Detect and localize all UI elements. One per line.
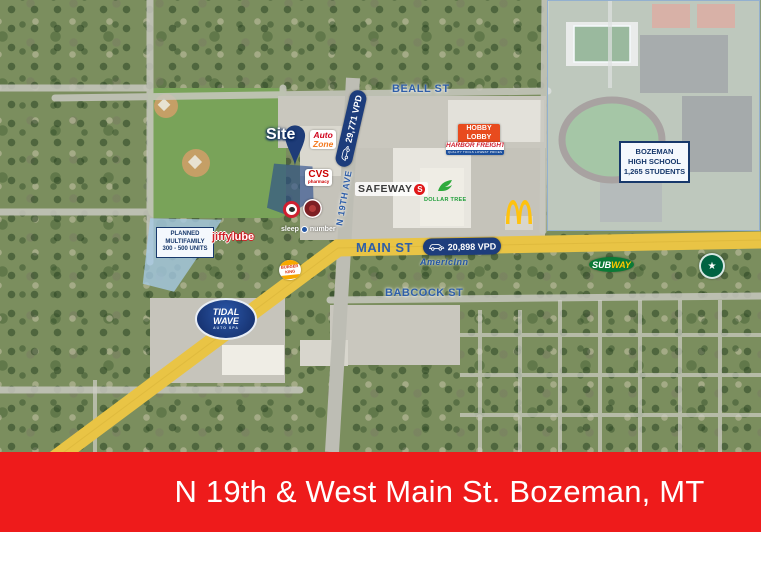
multifamily-line2: MULTIFAMILY [157,239,213,247]
harbor-freight-name: HARBOR FREIGHT [446,142,504,150]
traffic-badge-main-st: 20,898 VPD [423,237,501,255]
cvs-bottom: pharmacy [308,180,329,185]
harbor-freight-tagline: QUALITY TOOLS LOWEST PRICES [446,150,504,155]
dollar-tree-logo: DOLLAR TREE [424,179,466,203]
wave-line: WAVE [213,317,239,326]
sleep-number-logo: sleep number [281,226,336,233]
dollar-tree-name: DOLLAR TREE [424,197,466,203]
flyer-page: BOZEMAN HIGH SCHOOL 1,265 STUDENTS PLANN… [0,0,761,588]
street-label-babcock: BABCOCK ST [385,287,463,299]
siren-circle-icon: ★ [699,253,725,279]
autozone-bottom: Zone [313,140,333,149]
jiffy-lube-logo: jiffylube [212,231,254,243]
multifamily-units: 300 - 500 UNITS [157,246,213,254]
green-tree-icon [437,179,453,192]
high-school-callout: BOZEMAN HIGH SCHOOL 1,265 STUDENTS [619,141,690,183]
red-medallion-restaurant-icon [303,199,322,218]
auto-spa-line: AUTO SPA [213,327,239,331]
blue-circle-icon [301,226,308,233]
high-school-line2: HIGH SCHOOL [621,157,688,167]
street-label-main: MAIN ST [356,240,413,255]
hobby-lobby-line1: HOBBY [458,125,500,134]
autozone-logo: Auto Zone [310,130,336,149]
page-title: N 19th & West Main St. Bozeman, MT [175,474,705,510]
cvs-logo: CVS pharmacy [305,169,332,186]
way-part: WAY [611,260,631,270]
site-label: Site [266,126,295,144]
high-school-students: 1,265 STUDENTS [621,167,688,177]
lube-part: lube [232,231,255,243]
sub-part: SUB [592,260,611,270]
safeway-name: SAFEWAY [358,183,412,195]
car-icon [339,144,352,163]
title-banner: N 19th & West Main St. Bozeman, MT [0,452,761,532]
subway-logo: SUBWAY [589,257,634,272]
jiffy-part: jiffy [212,231,232,243]
aerial-map: BOZEMAN HIGH SCHOOL 1,265 STUDENTS PLANN… [0,0,761,452]
multifamily-callout: PLANNED MULTIFAMILY 300 - 500 UNITS [156,227,214,258]
harbor-freight-logo: HARBOR FREIGHT QUALITY TOOLS LOWEST PRIC… [446,142,504,155]
sleep-part: sleep [281,226,299,233]
safeway-logo: SAFEWAY S [355,182,428,196]
car-icon [428,242,445,251]
street-label-beall: BEALL ST [392,83,450,95]
americinn-logo: AmericInn [420,257,469,267]
tidal-wave-logo: TIDAL WAVE AUTO SPA [195,298,257,340]
mcdonalds-arches-icon [504,198,534,224]
number-part: number [310,226,336,233]
multifamily-line1: PLANNED [157,231,213,239]
red-ring-restaurant-icon [283,201,300,218]
hobby-lobby-logo: HOBBY LOBBY [458,124,500,144]
high-school-highlight-region [547,0,760,231]
high-school-line1: BOZEMAN [621,147,688,157]
main-st-vpd-value: 20,898 VPD [448,241,497,252]
